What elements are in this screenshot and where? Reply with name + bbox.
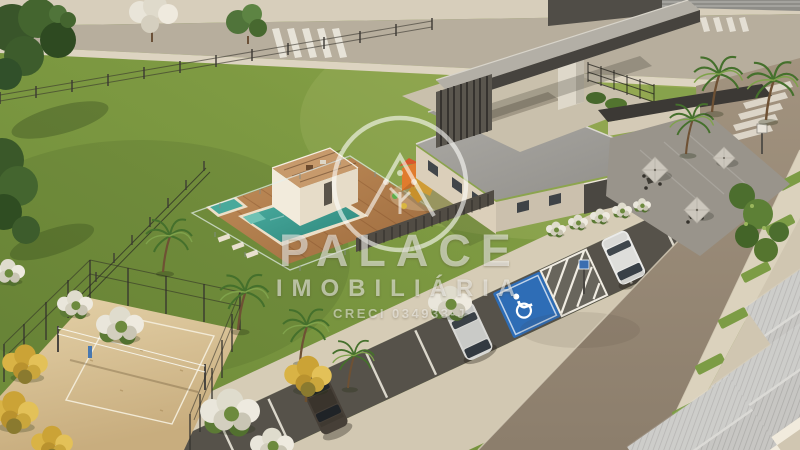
- deck-furniture: [320, 160, 326, 164]
- hedge: [586, 92, 606, 104]
- aerial-render: [0, 0, 800, 450]
- render-canvas: PALACE IMOBILIÁRIA CRECI 034933-J: [0, 0, 800, 450]
- spring-toy: [392, 193, 398, 199]
- spring-toy: [401, 203, 407, 209]
- court-post: [88, 346, 92, 358]
- pool-building-door: [324, 181, 332, 206]
